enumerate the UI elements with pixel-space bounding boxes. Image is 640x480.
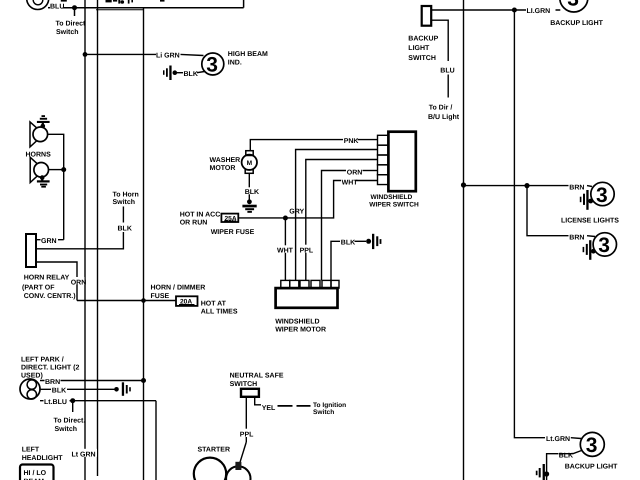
svg-text:FUSE: FUSE	[151, 293, 170, 300]
svg-text:HIGH BEAM: HIGH BEAM	[228, 51, 268, 58]
svg-text:To Direct: To Direct	[56, 20, 86, 28]
svg-text:3: 3	[206, 54, 218, 77]
svg-text:LIGHT: LIGHT	[408, 45, 430, 52]
svg-text:PNK: PNK	[344, 138, 359, 145]
svg-text:WIPER FUSE: WIPER FUSE	[211, 229, 255, 236]
svg-text:BLU: BLU	[50, 4, 64, 11]
svg-text:Lt.GRN: Lt.GRN	[546, 436, 570, 443]
svg-text:B/U Light: B/U Light	[428, 113, 460, 121]
svg-text:LI.GRN: LI.GRN	[527, 8, 551, 15]
svg-text:WHT: WHT	[342, 180, 359, 187]
svg-text:HI / LO: HI / LO	[24, 469, 47, 477]
svg-text:3: 3	[598, 234, 610, 257]
svg-text:LICENSE LIGHTS: LICENSE LIGHTS	[561, 217, 619, 224]
svg-text:BACKUP: BACKUP	[408, 36, 438, 43]
svg-text:YEL: YEL	[262, 405, 276, 412]
svg-text:HOT AT: HOT AT	[201, 300, 227, 307]
svg-text:ORN: ORN	[347, 169, 363, 176]
svg-text:To Ignition: To Ignition	[313, 402, 346, 409]
svg-text:HORN / DIMMER: HORN / DIMMER	[151, 283, 206, 291]
svg-text:PPL: PPL	[240, 432, 254, 439]
svg-text:BLK: BLK	[341, 240, 355, 247]
svg-text:3: 3	[586, 434, 598, 457]
svg-text:USED): USED)	[21, 371, 43, 379]
svg-text:LEFT: LEFT	[22, 447, 40, 454]
svg-text:3: 3	[596, 184, 608, 207]
svg-text:ORN: ORN	[71, 279, 87, 286]
svg-text:BACKUP LIGHT: BACKUP LIGHT	[565, 464, 618, 471]
svg-text:BRN: BRN	[569, 234, 584, 241]
svg-text:STARTER: STARTER	[198, 446, 231, 453]
svg-text:M: M	[247, 160, 253, 167]
svg-text:WASHER: WASHER	[210, 157, 241, 164]
svg-text:WHT: WHT	[277, 248, 294, 255]
svg-text:HORNS: HORNS	[26, 152, 52, 159]
svg-text:Switch: Switch	[55, 425, 78, 433]
svg-text:ALL TIMES: ALL TIMES	[201, 309, 238, 316]
svg-text:BRN: BRN	[45, 379, 60, 386]
svg-text:PPL: PPL	[300, 247, 314, 254]
svg-text:NEUTRAL SAFE: NEUTRAL SAFE	[230, 373, 284, 380]
svg-text:To Horn: To Horn	[113, 192, 139, 199]
svg-text:DIRECT. LIGHT (2: DIRECT. LIGHT (2	[21, 364, 79, 372]
svg-text:BRN: BRN	[569, 184, 584, 191]
svg-text:BLK: BLK	[118, 226, 132, 233]
svg-text:Li GRN: Li GRN	[156, 52, 180, 60]
svg-text:Switch: Switch	[56, 28, 79, 36]
svg-text:WIPER SWITCH: WIPER SWITCH	[369, 202, 419, 209]
svg-text:BLU: BLU	[440, 67, 454, 74]
svg-text:To Direct.: To Direct.	[54, 417, 86, 425]
svg-text:SWITCH: SWITCH	[230, 381, 258, 388]
svg-text:WINDSHIELD: WINDSHIELD	[275, 318, 319, 325]
svg-text:Switch: Switch	[313, 409, 334, 416]
svg-text:CONV. CENTR.): CONV. CENTR.)	[24, 292, 76, 300]
svg-text:HEADLIGHT: HEADLIGHT	[22, 455, 64, 462]
svg-text:HORN RELAY: HORN RELAY	[24, 275, 70, 282]
svg-text:To Dir /: To Dir /	[429, 104, 453, 112]
svg-text:IND.: IND.	[228, 60, 242, 67]
svg-text:Lt GRN: Lt GRN	[72, 451, 96, 458]
svg-text:BLK: BLK	[245, 189, 259, 196]
svg-text:OR RUN: OR RUN	[180, 219, 208, 226]
svg-text:BLK: BLK	[184, 71, 198, 78]
svg-text:GRY: GRY	[289, 209, 304, 216]
svg-text:Switch: Switch	[113, 198, 136, 206]
svg-text:(PART OF: (PART OF	[22, 283, 55, 291]
svg-text:Lt.BLU: Lt.BLU	[44, 399, 67, 406]
svg-text:HOT IN ACC: HOT IN ACC	[180, 211, 221, 218]
svg-text:WIPER MOTOR: WIPER MOTOR	[275, 326, 326, 333]
svg-text:WINDSHIELD: WINDSHIELD	[371, 194, 413, 201]
svg-text:SWITCH: SWITCH	[408, 55, 436, 62]
svg-text:BLK: BLK	[559, 452, 573, 459]
svg-text:GRN: GRN	[41, 238, 57, 245]
svg-text:MOTOR: MOTOR	[210, 165, 236, 172]
svg-text:BLK: BLK	[52, 388, 66, 395]
svg-text:3: 3	[567, 0, 579, 11]
svg-text:LEFT PARK /: LEFT PARK /	[21, 356, 64, 364]
svg-text:BACKUP LIGHT: BACKUP LIGHT	[550, 20, 603, 27]
